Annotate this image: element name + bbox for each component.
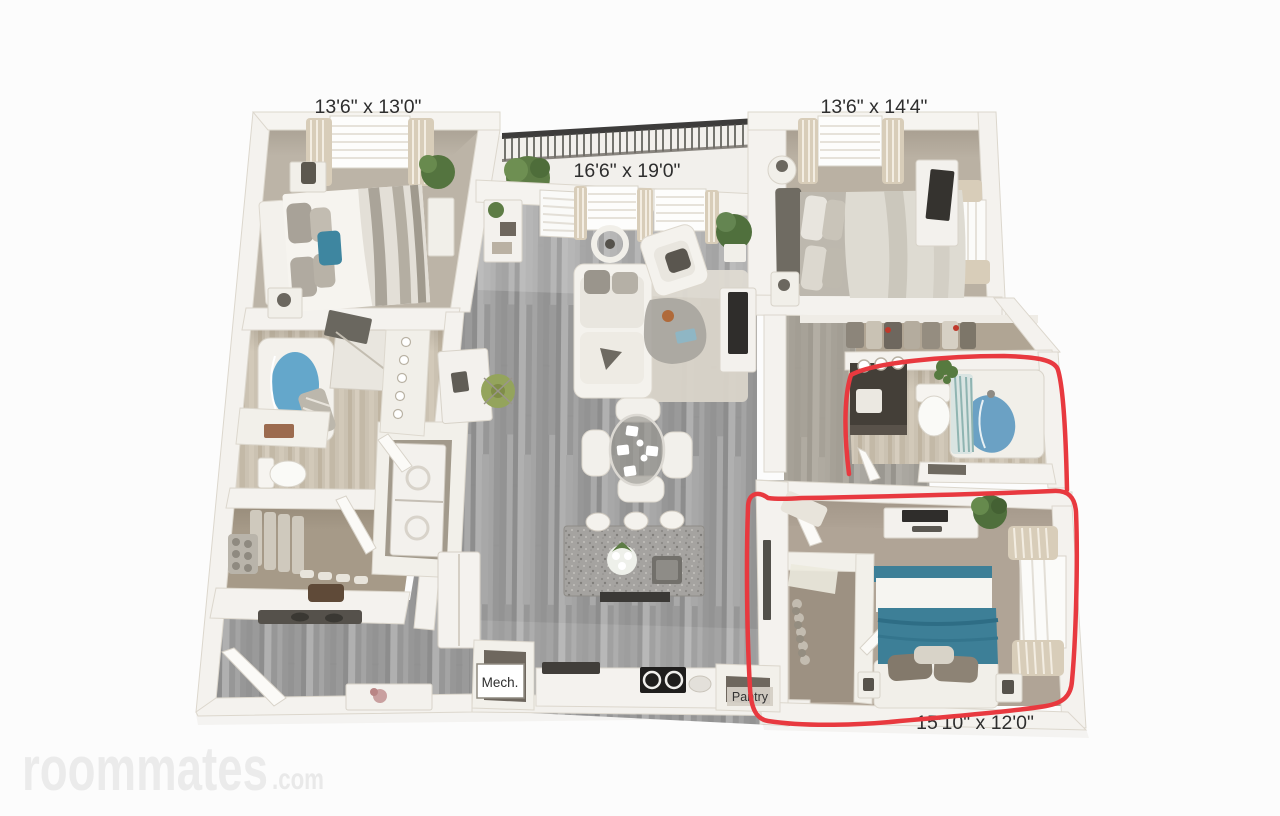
svg-text:.com: .com (272, 763, 324, 796)
svg-text:roommates: roommates (22, 735, 268, 804)
svg-text:13'6" x 14'4": 13'6" x 14'4" (821, 96, 928, 118)
svg-text:16'6" x 19'0": 16'6" x 19'0" (574, 160, 681, 182)
svg-text:Mech.: Mech. (482, 675, 519, 690)
svg-text:13'6" x 13'0": 13'6" x 13'0" (315, 96, 422, 118)
